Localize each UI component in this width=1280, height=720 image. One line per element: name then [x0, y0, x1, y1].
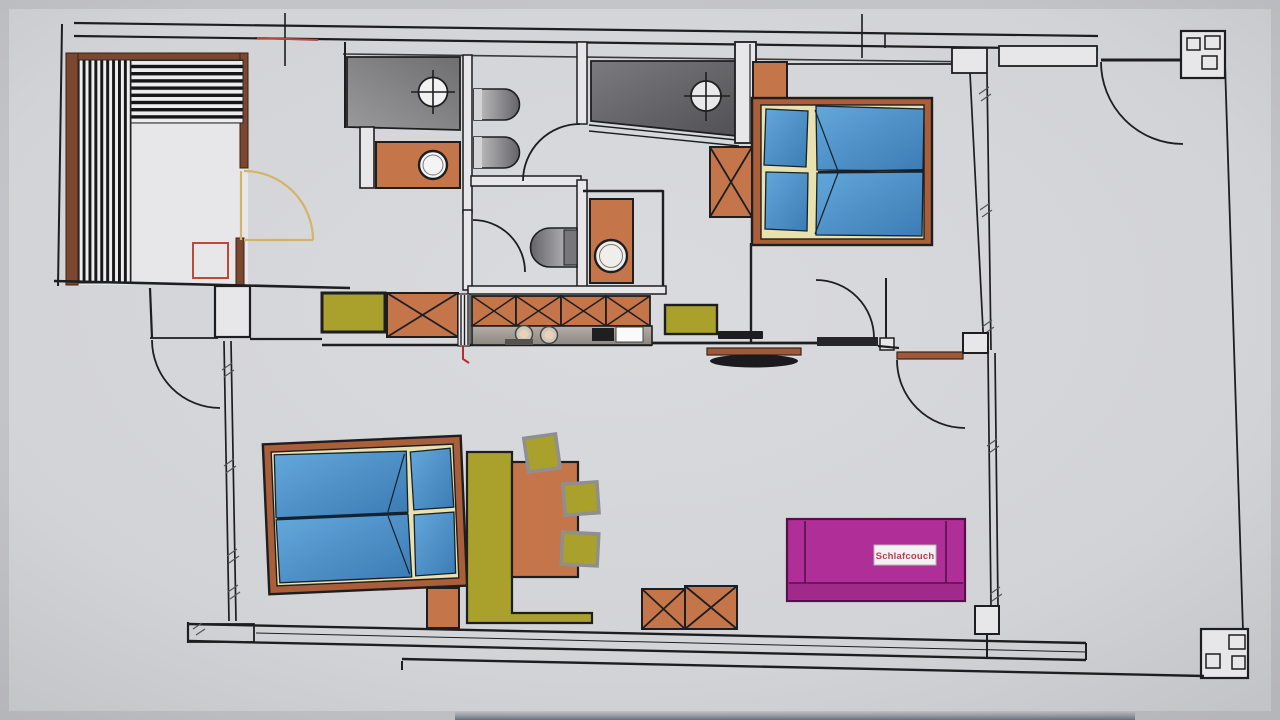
bath-partition-wall [463, 55, 472, 213]
entry-wall-chunk [999, 46, 1097, 66]
column-symbol-bottom [1201, 629, 1248, 678]
upper-cabinet-crossed [606, 296, 650, 326]
duvet [816, 106, 924, 171]
washbasin-icon [419, 151, 447, 179]
balcony-frame-top [66, 53, 248, 60]
chair [563, 482, 599, 515]
sink-drainer [616, 327, 643, 342]
duvet [816, 172, 923, 236]
wall-pillar [215, 286, 250, 337]
tv-ellipse [710, 355, 798, 368]
bedside-block [427, 588, 459, 628]
washbasin-icon-2 [595, 240, 627, 272]
tv-bar [718, 331, 763, 339]
pillow [410, 448, 454, 510]
wc-east-wall [577, 180, 587, 293]
storage-box-crossed [685, 586, 737, 629]
pillow [765, 172, 808, 231]
chair [524, 434, 560, 472]
column-symbol-top [1181, 31, 1225, 78]
upper-cabinet-crossed [561, 296, 606, 326]
upper-cabinet-crossed [516, 296, 561, 326]
pillow [764, 109, 808, 167]
toilet-1 [474, 89, 520, 120]
bath-lower-wall [471, 176, 581, 186]
upper-cabinet-crossed [472, 296, 516, 326]
floor-plan-photo: Schlafcouch [0, 0, 1280, 720]
toilet-3 [531, 228, 578, 267]
balcony-door-post [236, 238, 244, 287]
kitchen-counter-block [322, 293, 385, 332]
striped-divider [458, 294, 470, 346]
kitchen-sink [592, 328, 614, 341]
cooktop-label-strip [505, 339, 533, 345]
sleeper-couch: Schlafcouch [787, 519, 965, 601]
floor-plan: Schlafcouch [0, 0, 1280, 720]
bath-east-wall-upper [577, 42, 587, 124]
sliding-door-panel [817, 337, 878, 346]
nightstand-crossed-box [710, 147, 752, 217]
cooktop-burner [541, 327, 558, 344]
chair [561, 532, 599, 566]
wc-west-wall [463, 210, 472, 290]
toilet-2 [474, 137, 519, 168]
door-threshold [897, 352, 963, 359]
bath-wall-stub [360, 127, 374, 188]
wall-pier [963, 333, 988, 353]
balcony-frame-left [66, 53, 78, 285]
double-bed-1 [752, 98, 932, 245]
deck-stripes-horizontal [131, 60, 243, 123]
sideboard-block [665, 305, 717, 334]
couch-label: Schlafcouch [876, 551, 935, 562]
deck-stripes-vertical [79, 60, 131, 283]
wall-pier-bottom [975, 606, 999, 634]
double-bed-2 [263, 436, 467, 594]
tv-board [707, 348, 801, 355]
wc-south-wall [468, 286, 666, 294]
pillow [413, 512, 457, 576]
headboard-cabinet [753, 62, 787, 102]
storage-box-crossed [642, 589, 685, 629]
bedroom-corner-pier [952, 48, 987, 73]
crossed-cabinet-large [387, 293, 458, 337]
